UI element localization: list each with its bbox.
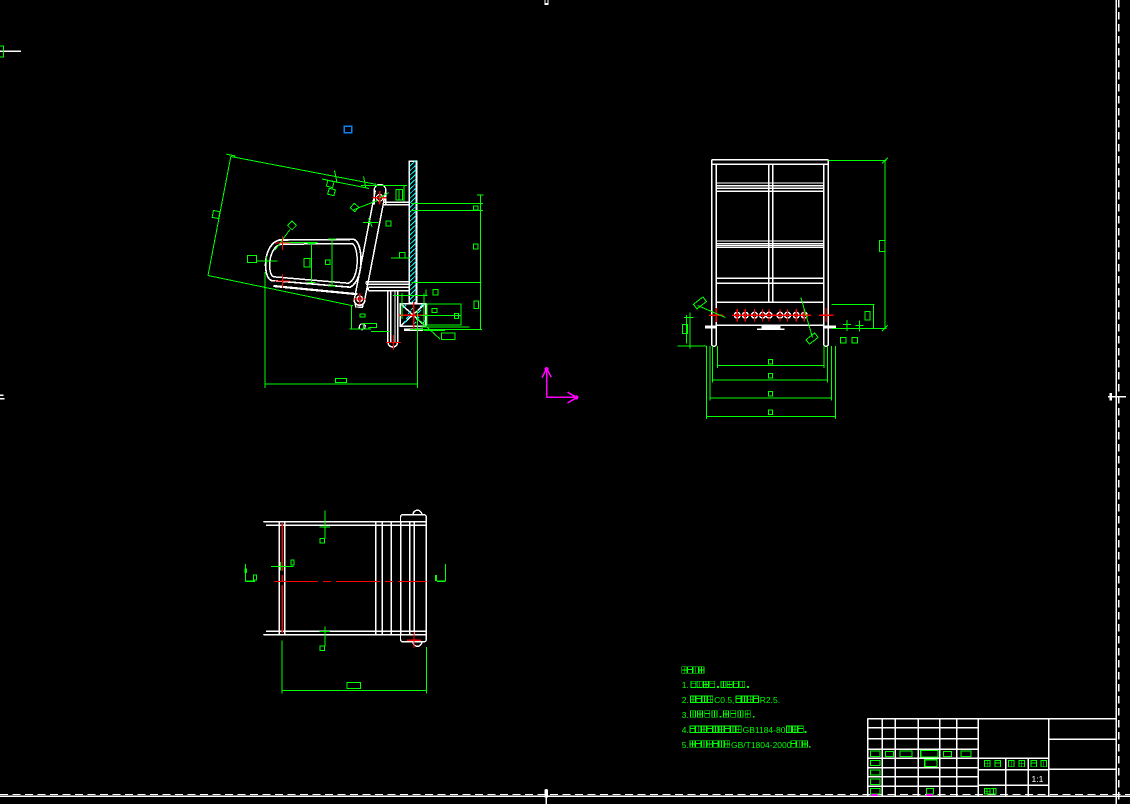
svg-text:2.: 2. (682, 695, 689, 705)
svg-text:GB/T1804-2000: GB/T1804-2000 (731, 740, 792, 750)
svg-text:C0.5,: C0.5, (714, 695, 734, 705)
svg-text:GB1184-80: GB1184-80 (743, 725, 786, 735)
svg-text:5.: 5. (682, 740, 689, 750)
svg-text:1:1: 1:1 (1032, 774, 1044, 784)
svg-text:4.: 4. (682, 725, 689, 735)
svg-text:R2.5.: R2.5. (760, 695, 780, 705)
svg-text:1.: 1. (682, 680, 689, 690)
svg-text:3.: 3. (682, 710, 689, 720)
